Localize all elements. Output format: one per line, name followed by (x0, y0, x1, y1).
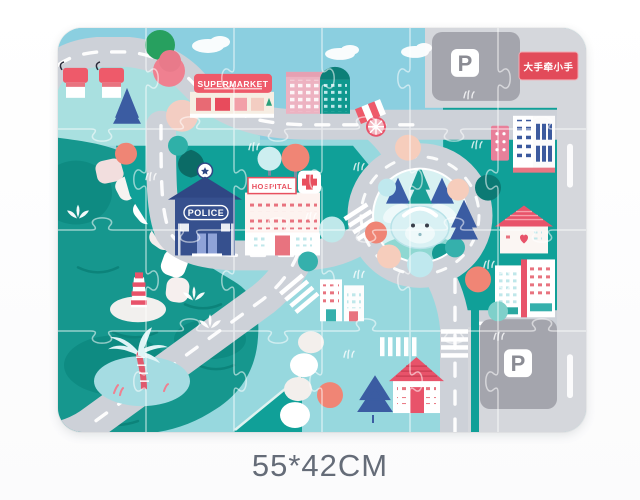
parking-letter-top: P (458, 51, 473, 76)
round-tree-teal-mid (298, 251, 318, 271)
round-tree-teal-lake (168, 136, 188, 156)
product-photo: P P (0, 0, 640, 500)
puzzle-mat-image: P P (58, 28, 586, 432)
dome-building (320, 67, 350, 114)
small-shops-bottom (320, 279, 364, 321)
puzzle-scene: P P (58, 28, 586, 432)
round-tree-coral-right (465, 266, 491, 292)
police-sign: POLICE (188, 208, 224, 218)
parking-letter-bottom: P (511, 351, 526, 376)
round-tree-peach (395, 135, 421, 161)
brand-badge: 大手牵小手 (519, 52, 578, 80)
brand-badge-text: 大手牵小手 (524, 61, 574, 73)
parking-sign-top-icon: P (451, 49, 479, 77)
green-strip (471, 291, 479, 432)
round-tree-coral-bottom (317, 382, 343, 408)
dimension-label: 55*42CM (0, 448, 640, 484)
round-tree-coral-lake (115, 143, 137, 165)
parking-sign-bottom-icon: P (504, 349, 532, 377)
